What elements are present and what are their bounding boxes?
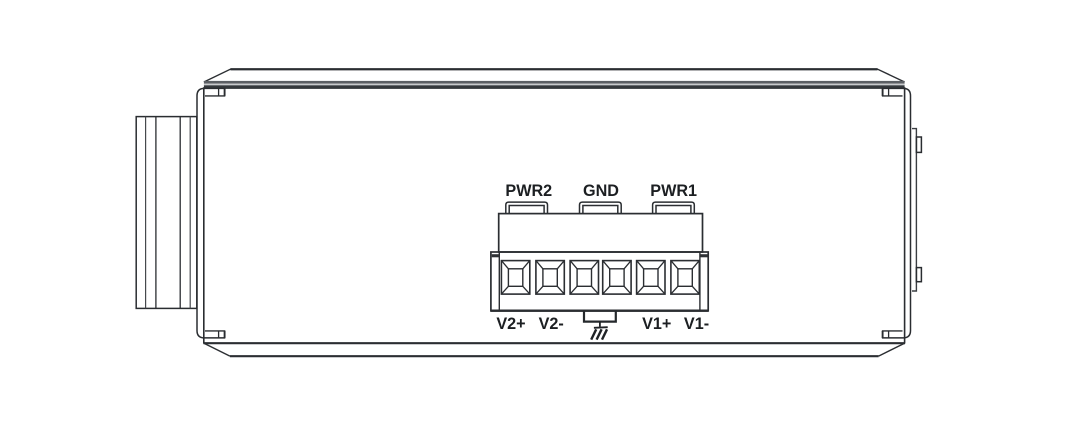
svg-text:PWR2: PWR2 (505, 182, 552, 200)
svg-text:V2-: V2- (539, 315, 564, 333)
svg-text:PWR1: PWR1 (650, 182, 697, 200)
svg-text:V2+: V2+ (496, 315, 525, 333)
svg-text:V1+: V1+ (642, 315, 671, 333)
svg-text:GND: GND (583, 182, 619, 200)
svg-text:V1-: V1- (684, 315, 709, 333)
